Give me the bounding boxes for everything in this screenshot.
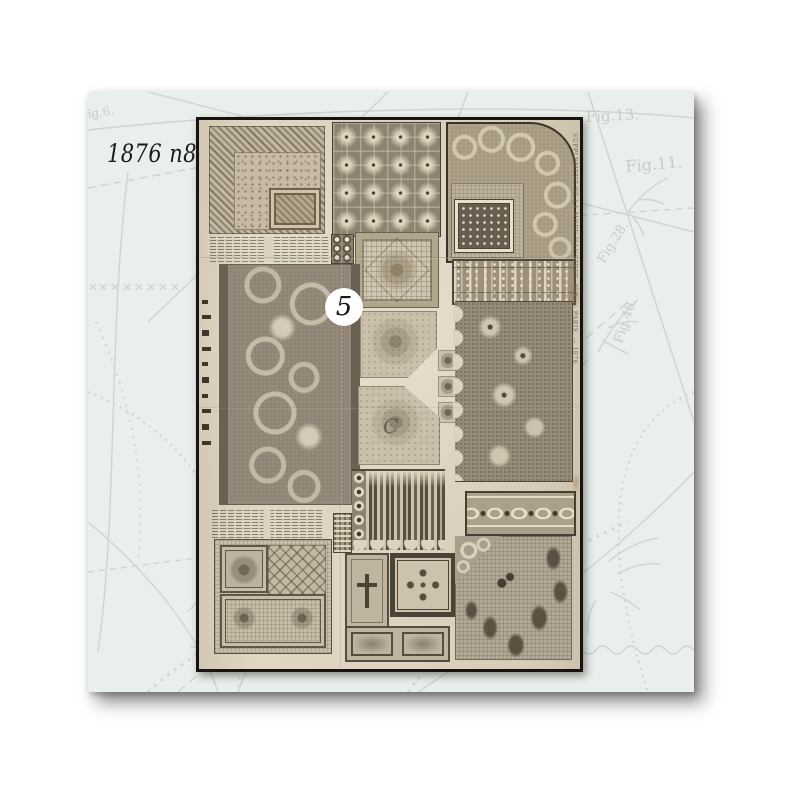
swatch-interlaced-border-band xyxy=(465,491,576,536)
registration-mark xyxy=(202,362,208,366)
pattern-dashed-line xyxy=(88,558,196,572)
vintage-pattern-photo-card: Fig.13. Fig.11. Fig.28. Fig.48. Fig.6. 1… xyxy=(88,92,694,692)
registration-mark xyxy=(202,330,209,336)
pattern-floral-sprig xyxy=(628,178,668,236)
caption-year-issue: 1876 n8 xyxy=(107,139,197,168)
greek-key-lower-frame xyxy=(220,594,326,648)
swatch-mini-sampler-strip xyxy=(333,513,352,553)
fold-crease-horizontal xyxy=(199,407,580,409)
figure-label: Fig.48. xyxy=(612,297,641,346)
registration-mark xyxy=(202,424,209,430)
pattern-floral-sprig xyxy=(588,538,660,634)
pattern-line xyxy=(98,172,128,652)
registration-mark xyxy=(202,409,211,413)
registration-mark xyxy=(202,394,208,398)
swatch-monogram-square-lower: C xyxy=(358,386,440,465)
swatch-cross-frame-corner xyxy=(345,553,448,662)
swatch-mosaic-palmette-square xyxy=(355,232,439,308)
figure-label: Fig.28. xyxy=(595,219,632,266)
swatch-star-tile-square xyxy=(332,122,441,237)
palmette-motif xyxy=(364,237,429,302)
swatch-butterfly-embroidery-corner xyxy=(455,536,572,660)
swatch-monogram-square-upper xyxy=(360,311,437,378)
fold-crease-horizontal xyxy=(199,257,580,259)
fold-crease-vertical xyxy=(340,120,342,669)
registration-mark xyxy=(202,377,209,383)
swatch-dotted-square-sampler xyxy=(455,200,513,252)
diamond-lattice-quadrant xyxy=(268,545,326,595)
number-badge: 5 xyxy=(325,288,363,326)
registration-marks xyxy=(202,300,213,445)
registration-mark xyxy=(202,300,208,304)
sheet-edge-imprint: SUPPLEMENT DE LA MODE ILLUSTREE. N 8. — … xyxy=(571,133,578,293)
cartouche-horizontal-band xyxy=(345,626,450,662)
paper-stain xyxy=(571,280,580,310)
registration-mark xyxy=(202,441,211,445)
monogram-wreath xyxy=(360,311,437,378)
pattern-dotted-arc xyxy=(96,322,141,562)
figure-label: Fig.13. xyxy=(585,105,639,126)
figure-label: Fig.11. xyxy=(625,152,683,176)
swatch-scalloped-lace-flounce xyxy=(455,301,573,482)
registration-mark xyxy=(202,347,211,351)
instruction-text-block-lower xyxy=(212,509,322,538)
pattern-sheet: C SUPPLEMENT DE LA MODE ILLUSTREE. N 8. … xyxy=(196,117,583,672)
swatch-circle-motif-strip xyxy=(331,234,354,264)
sampler-diamond-corner xyxy=(269,188,321,230)
monogram-letter: C xyxy=(383,414,398,438)
paper-stain xyxy=(572,472,580,494)
swatch-greek-key-square xyxy=(214,539,332,654)
registration-mark xyxy=(202,315,211,319)
badge-number: 5 xyxy=(336,292,353,322)
figure-label: Fig.6. xyxy=(88,103,115,123)
monogram-wreath xyxy=(358,386,440,465)
cross-vertical-band xyxy=(345,553,389,629)
quatrefoil-square xyxy=(390,553,456,617)
pattern-zigzag-row xyxy=(90,284,178,290)
swatch-lace-band xyxy=(452,259,576,305)
swatch-pointed-lace-edging xyxy=(352,469,445,550)
swatch-cross-stitch-corner-sampler xyxy=(209,126,325,234)
greek-key-palmette-quadrant xyxy=(220,545,268,593)
